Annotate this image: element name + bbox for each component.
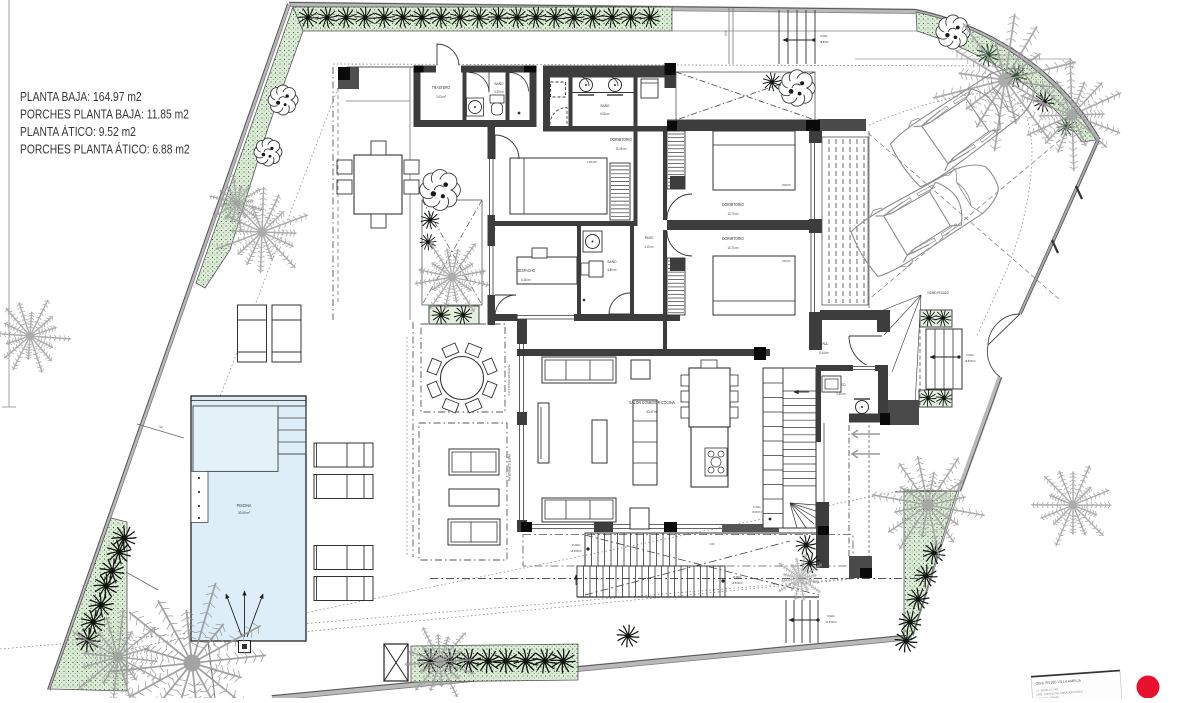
svg-text:SALON COMEDOR COCINA: SALON COMEDOR COCINA [629,400,675,406]
svg-text:PARTE SUPERIOR P.B.: PARTE SUPERIOR P.B. [507,454,511,482]
svg-text:PLANTA BAJA: 164.97 m2: PLANTA BAJA: 164.97 m2 [20,89,142,105]
svg-text:13.73 m²: 13.73 m² [727,246,738,250]
svg-text:BAÑO: BAÑO [494,81,503,87]
svg-text:PORCHES PLANTA ÁTICO: 6.88 m2: PORCHES PLANTA ÁTICO: 6.88 m2 [20,141,190,157]
svg-text:16.5X30.0: 16.5X30.0 [571,549,582,553]
svg-text:18 MAC: 18 MAC [733,575,742,579]
svg-text:TRASTERO: TRASTERO [432,86,450,90]
svg-text:1.50X1.90: 1.50X1.90 [782,185,791,187]
svg-text:1.50X1.90: 1.50X1.90 [782,261,791,263]
svg-text:DORMITORIO: DORMITORIO [722,203,744,207]
svg-text:4.60: 4.60 [710,542,715,546]
svg-text:DORMITORIO: DORMITORIO [722,237,744,241]
svg-text:6.08 m²: 6.08 m² [600,112,609,116]
svg-text:23 MAC: 23 MAC [572,543,581,547]
svg-text:13.73 m²: 13.73 m² [727,212,738,216]
svg-text:13.5X30.0: 13.5X30.0 [826,620,837,624]
svg-text:5 MAC: 5 MAC [820,34,827,38]
svg-text:2.03 m²: 2.03 m² [436,95,447,99]
svg-text:BAÑO: BAÑO [607,259,616,265]
svg-text:4.10 m²: 4.10 m² [644,245,653,249]
svg-text:4.80 m²: 4.80 m² [607,268,616,272]
svg-text:17 MAC: 17 MAC [753,506,761,509]
svg-text:PASO: PASO [645,236,654,240]
svg-text:DESPACHO: DESPACHO [517,269,536,273]
svg-text:16.5X30.0: 16.5X30.0 [732,581,743,585]
svg-text:PA SISTEMA PERGOLA PLA: PA SISTEMA PERGOLA PLA [507,364,511,395]
svg-text:PLANTA ÁTICO: 9.52 m2: PLANTA ÁTICO: 9.52 m2 [20,124,136,140]
svg-text:5 MAC: 5 MAC [827,614,834,618]
svg-text:53.97 m²: 53.97 m² [646,410,658,414]
svg-text:16.5X30.0: 16.5X30.0 [965,359,976,363]
svg-text:BAÑO: BAÑO [600,103,609,109]
svg-text:16.50X3: 16.50X3 [820,40,829,44]
svg-text:3.30 m²: 3.30 m² [494,90,503,94]
svg-text:VIDRIO PEGADO: VIDRIO PEGADO [927,291,949,295]
svg-text:5 MAC: 5 MAC [966,353,973,357]
svg-text:30.09 m²: 30.09 m² [238,511,251,515]
svg-text:DORMITORIO: DORMITORIO [610,138,632,142]
svg-text:8.00: 8.00 [724,30,728,35]
svg-text:5.44 m²: 5.44 m² [819,351,828,355]
svg-text:15.26 m²: 15.26 m² [615,147,626,151]
svg-text:PORCHES PLANTA BAJA: 11.85 m2: PORCHES PLANTA BAJA: 11.85 m2 [20,106,189,122]
svg-text:1.50X1.90: 1.50X1.90 [587,162,597,164]
svg-text:6.26 m²: 6.26 m² [521,278,530,282]
svg-text:PISCINA: PISCINA [237,503,252,509]
svg-text:HALL: HALL [820,342,828,346]
svg-text:18.0X27.9: 18.0X27.9 [752,512,762,514]
